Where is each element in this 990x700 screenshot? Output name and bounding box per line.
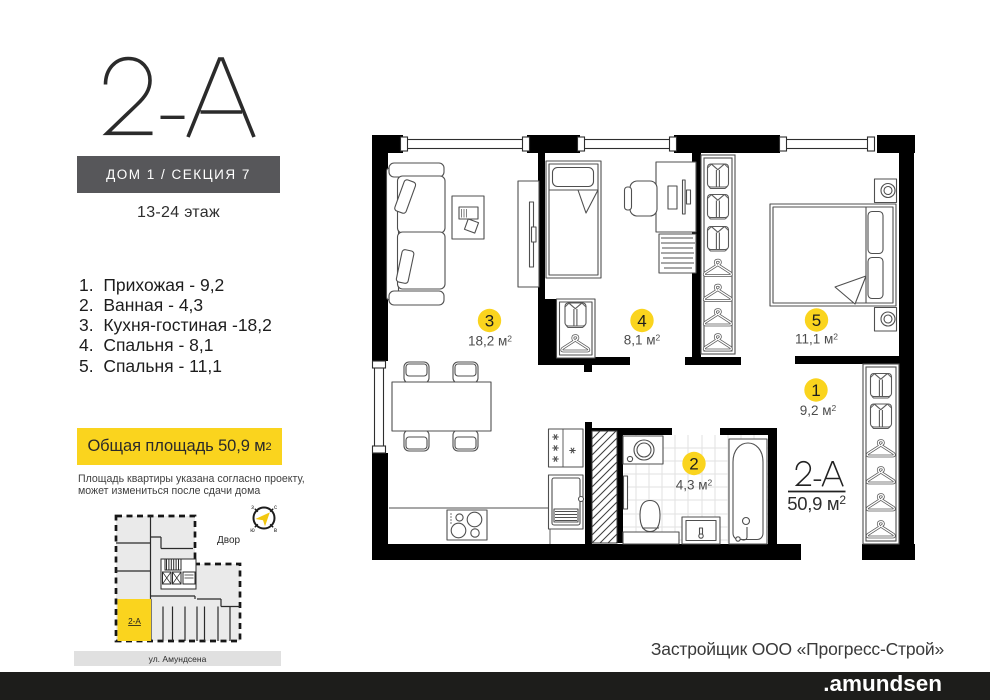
- svg-text:4: 4: [637, 312, 646, 331]
- svg-text:2-А: 2-А: [128, 617, 141, 626]
- svg-text:4,3 м2: 4,3 м2: [676, 478, 713, 493]
- svg-text:18,2 м2: 18,2 м2: [468, 334, 512, 349]
- svg-text:1: 1: [811, 381, 820, 400]
- svg-text:3: 3: [485, 312, 494, 331]
- svg-text:Двор: Двор: [217, 535, 241, 546]
- svg-text:2: 2: [689, 455, 698, 474]
- svg-text:11,1 м2: 11,1 м2: [795, 332, 838, 347]
- svg-text:9,2 м2: 9,2 м2: [800, 403, 837, 418]
- svg-text:с: с: [274, 505, 277, 511]
- svg-text:5: 5: [812, 311, 821, 330]
- svg-text:з: з: [251, 505, 254, 511]
- svg-text:ю: ю: [250, 528, 255, 534]
- svg-text:в: в: [274, 528, 277, 534]
- svg-text:8,1 м2: 8,1 м2: [624, 333, 661, 348]
- svg-text:50,9 м2: 50,9 м2: [787, 493, 846, 514]
